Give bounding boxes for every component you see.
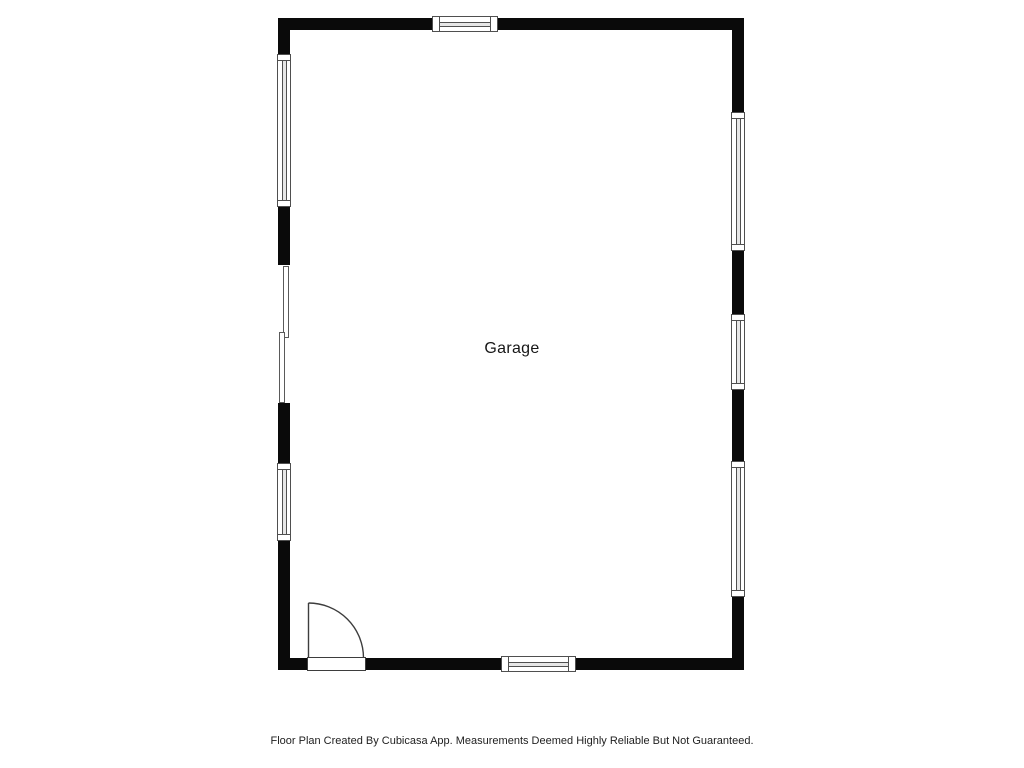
- window-glass-line: [509, 662, 568, 667]
- wall-top: [278, 18, 744, 30]
- window-bottom-wall: [501, 656, 576, 672]
- wall-opening-upper: [283, 266, 289, 338]
- footer-disclaimer: Floor Plan Created By Cubicasa App. Meas…: [0, 734, 1024, 748]
- window-frame-line: [732, 244, 744, 245]
- window-frame-line: [732, 383, 744, 384]
- room-label: Garage: [0, 340, 1024, 358]
- window-left-lower: [277, 463, 291, 541]
- window-glass-line: [282, 61, 287, 200]
- window-frame-line: [732, 590, 744, 591]
- window-frame-line: [278, 534, 290, 535]
- window-glass-line: [736, 468, 741, 590]
- window-glass-line: [736, 119, 741, 244]
- window-glass-line: [440, 22, 490, 27]
- window-glass-line: [282, 470, 287, 534]
- window-right-upper: [731, 112, 745, 251]
- door-arc: [309, 603, 364, 658]
- window-frame-line: [568, 657, 569, 671]
- window-left-upper: [277, 54, 291, 207]
- door-swing-icon: [300, 596, 372, 668]
- window-right-lower: [731, 461, 745, 597]
- window-top-wall: [432, 16, 498, 32]
- window-frame-line: [490, 17, 491, 31]
- floor-plan-canvas: Garage Floor Plan Created By Cubicasa Ap…: [0, 0, 1024, 768]
- window-frame-line: [278, 200, 290, 201]
